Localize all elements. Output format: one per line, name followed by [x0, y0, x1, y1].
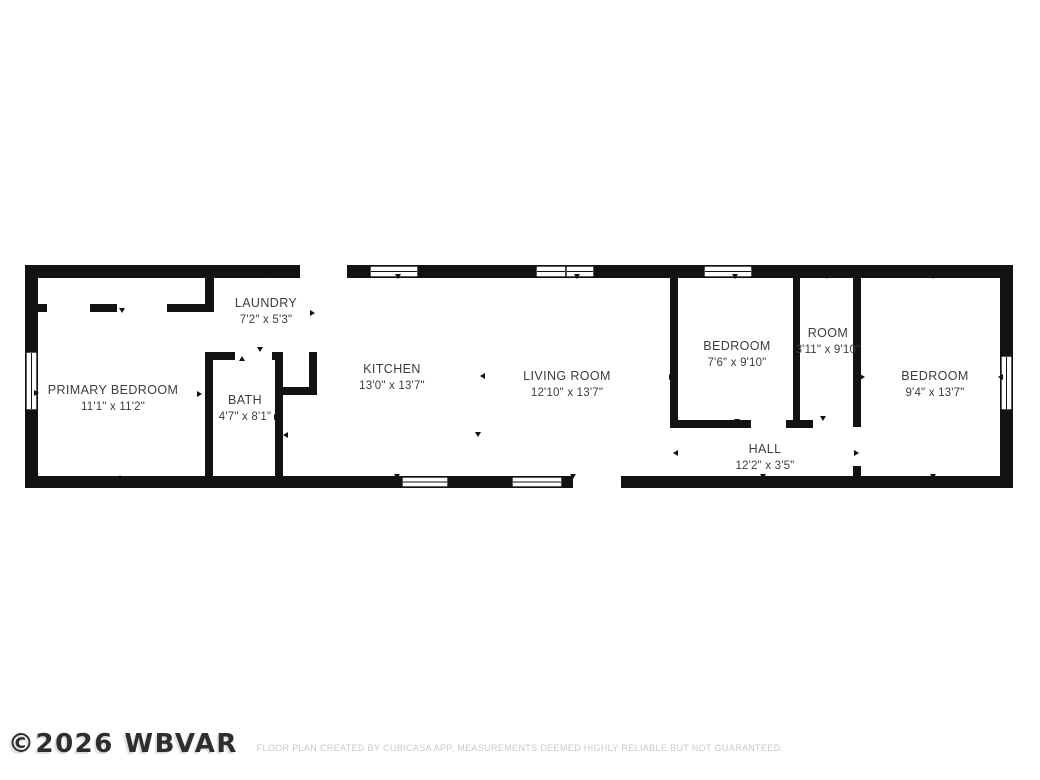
door-swing-marker-icon: [239, 356, 245, 361]
window-icon: [370, 266, 418, 277]
door-swing-marker-icon: [475, 432, 481, 437]
door-swing-marker-icon: [820, 416, 826, 421]
window-icon: [536, 266, 566, 277]
door-swing-marker-icon: [119, 308, 125, 313]
room-name: LIVING ROOM: [477, 368, 657, 385]
room-name: LAUNDRY: [176, 295, 356, 312]
room-label-hall: HALL 12'2" x 3'5": [675, 441, 855, 475]
wall-segment: [621, 476, 1013, 488]
room-name: ROOM: [738, 325, 918, 342]
wall-segment: [90, 304, 117, 312]
room-label-bedroom-right: BEDROOM 9'4" x 13'7": [845, 368, 1025, 402]
room-dimensions: 13'0" x 13'7": [302, 378, 482, 395]
room-dimensions: 4'7" x 8'1": [155, 409, 335, 426]
window-icon: [566, 266, 594, 277]
door-swing-marker-icon: [283, 432, 288, 438]
window-icon: [402, 477, 448, 487]
window-icon: [512, 477, 562, 487]
wall-segment: [205, 352, 235, 360]
room-dimensions: 12'10" x 13'7": [477, 385, 657, 402]
wall-segment: [25, 476, 573, 488]
room-label-laundry: LAUNDRY 7'2" x 5'3": [176, 295, 356, 329]
window-icon: [704, 266, 752, 277]
wall-segment: [25, 265, 300, 278]
wall-segment: [347, 265, 1013, 278]
room-name: BEDROOM: [845, 368, 1025, 385]
room-label-bath: BATH 4'7" x 8'1": [155, 392, 335, 426]
wall-segment: [38, 304, 47, 312]
room-label-room: ROOM 3'11" x 9'10": [738, 325, 918, 359]
wall-segment: [670, 420, 751, 428]
room-dimensions: 12'2" x 3'5": [675, 458, 855, 475]
room-dimensions: 3'11" x 9'10": [738, 342, 918, 359]
room-dimensions: 9'4" x 13'7": [845, 385, 1025, 402]
room-label-living-room: LIVING ROOM 12'10" x 13'7": [477, 368, 657, 402]
floorplan-image: PRIMARY BEDROOM 11'1" x 11'2" LAUNDRY 7'…: [0, 0, 1040, 780]
room-label-kitchen: KITCHEN 13'0" x 13'7": [302, 361, 482, 395]
disclaimer-text: FLOOR PLAN CREATED BY CUBICASA APP, MEAS…: [0, 743, 1040, 753]
room-name: HALL: [675, 441, 855, 458]
room-dimensions: 7'2" x 5'3": [176, 312, 356, 329]
door-swing-marker-icon: [257, 347, 263, 352]
room-name: KITCHEN: [302, 361, 482, 378]
